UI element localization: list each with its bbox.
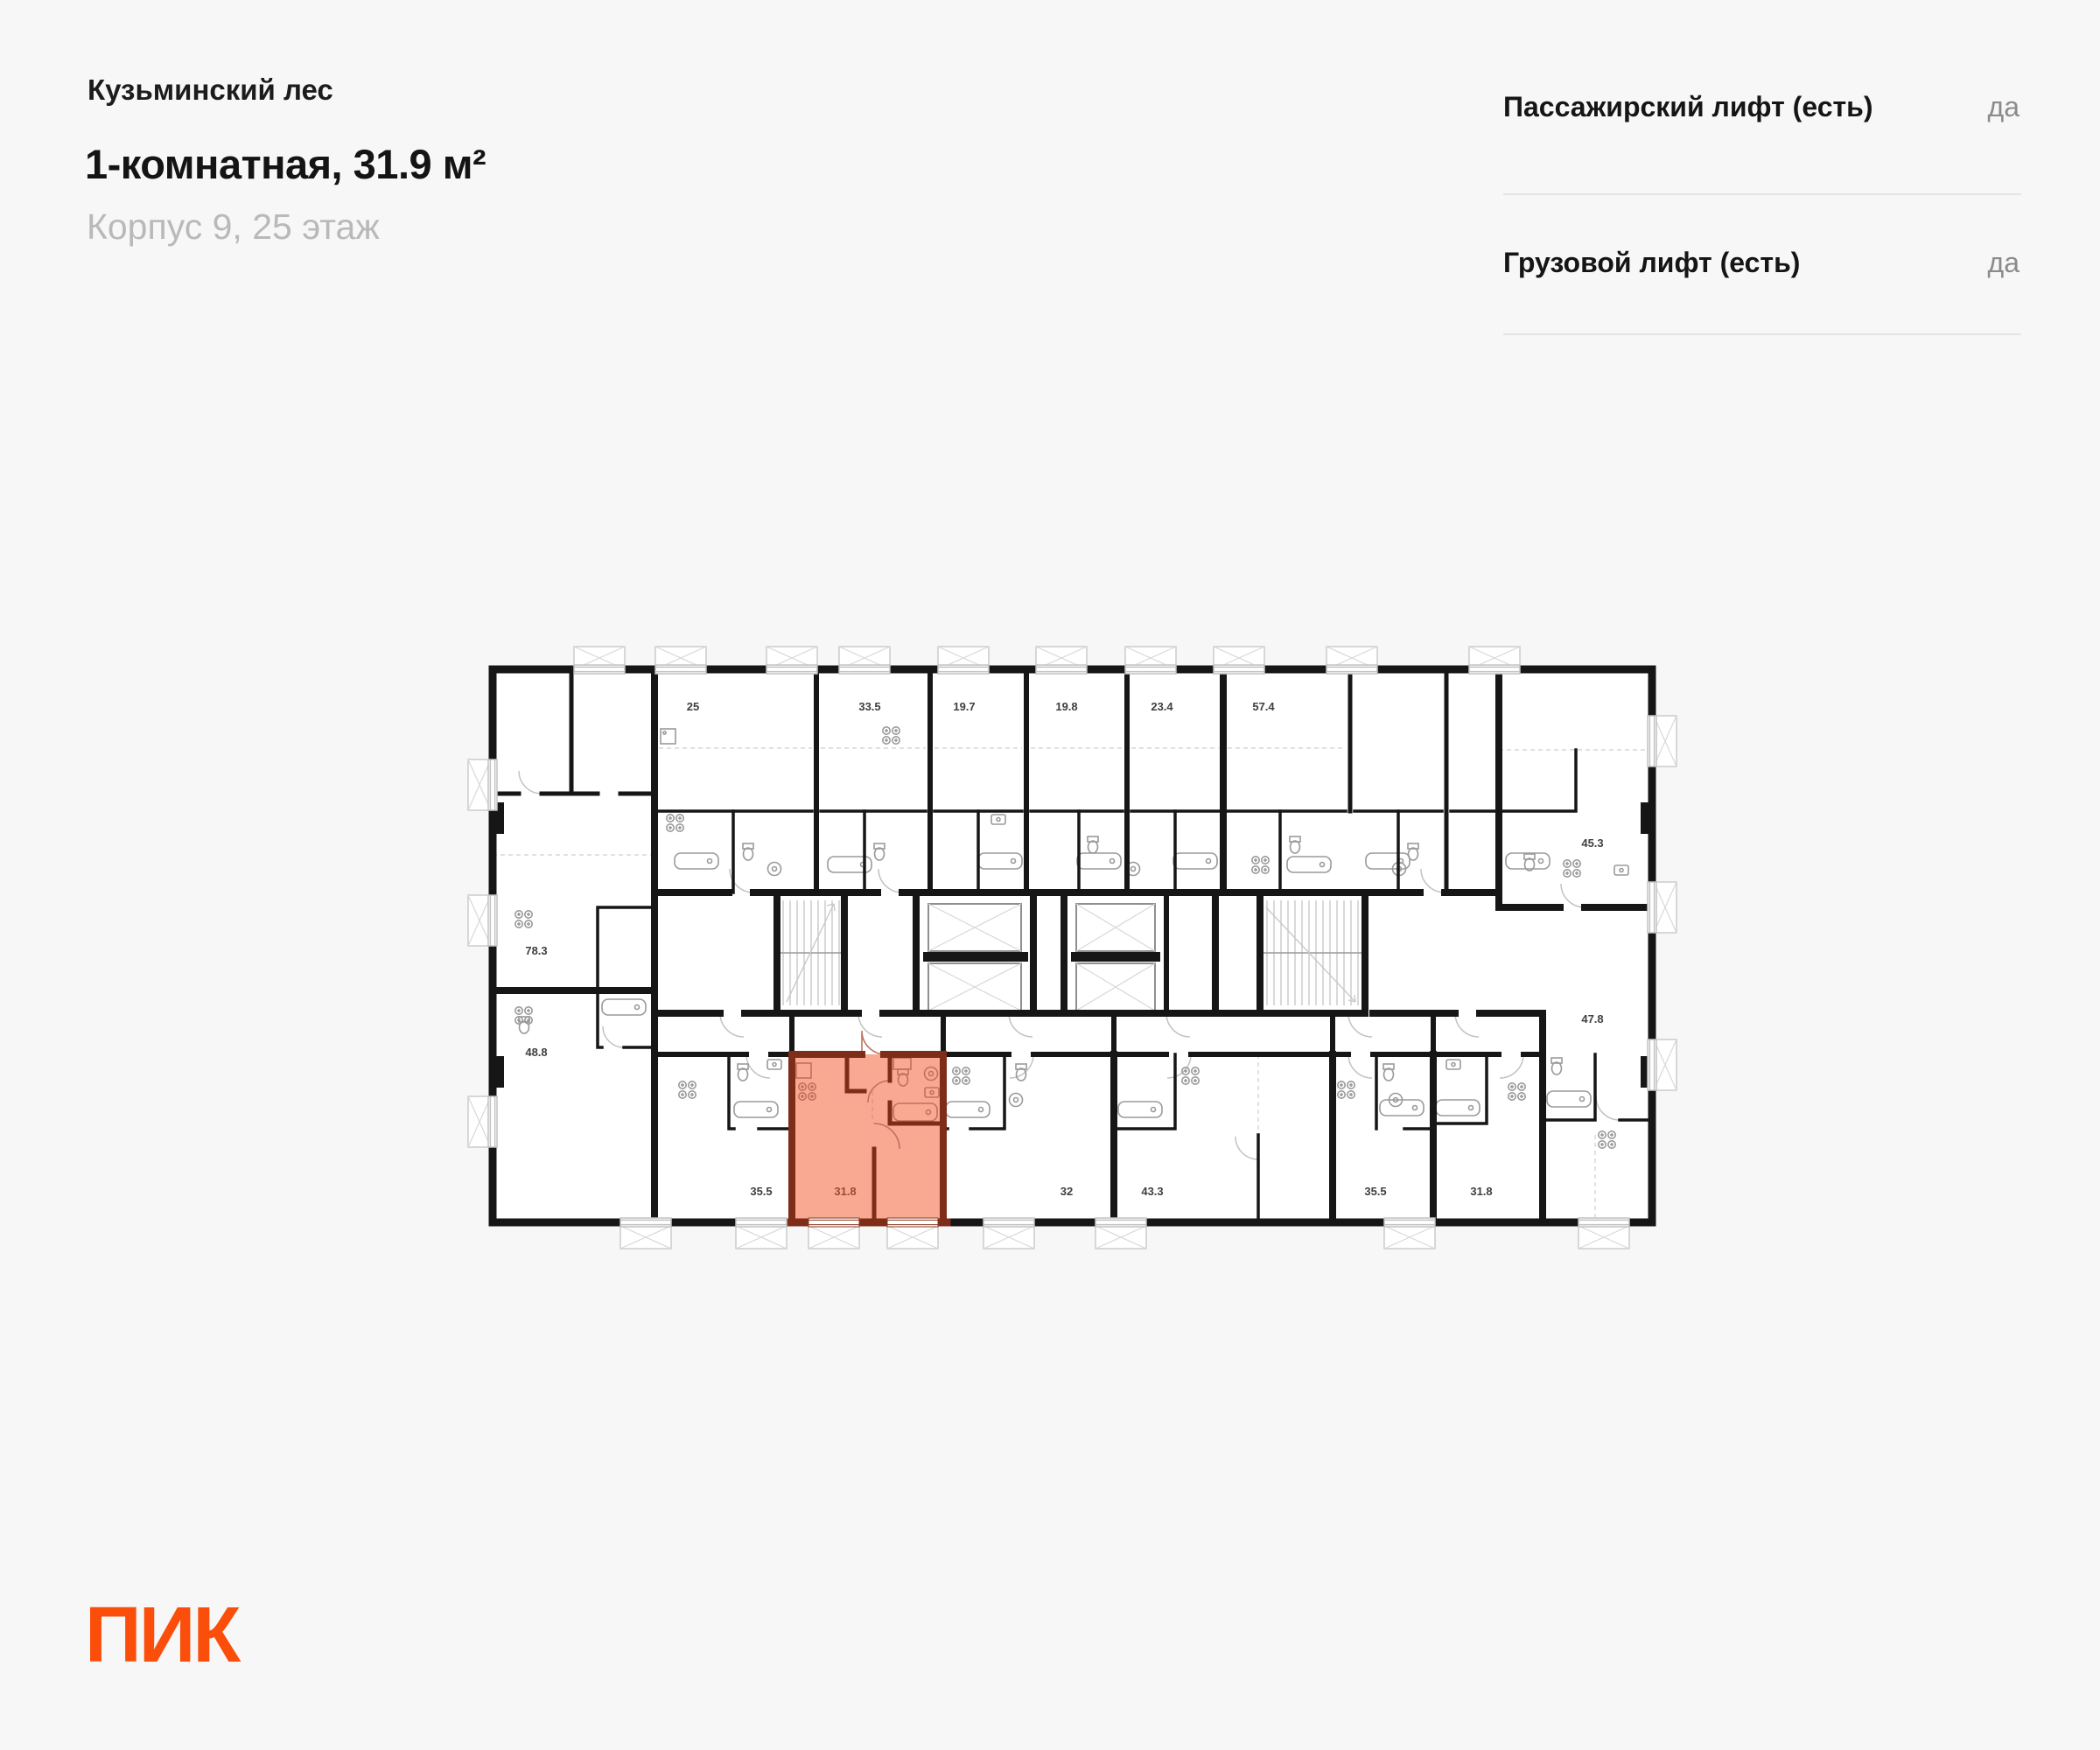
page-subtitle: Корпус 9, 25 этаж [87, 206, 380, 248]
unit-area-label: 43.3 [1141, 1185, 1163, 1198]
specs-panel: Пассажирский лифт (есть) да Грузовой лиф… [1503, 0, 2021, 350]
spec-label: Пассажирский лифт (есть) [1503, 91, 1873, 122]
project-name: Кузьминский лес [87, 73, 333, 107]
floor-plan: 25 33.5 19.7 19.8 23.4 57.4 45.3 78.3 48… [466, 645, 1678, 1257]
unit-area-label: 35.5 [1364, 1185, 1386, 1198]
floor-plan-page: Кузьминский лес 1-комнатная, 31.9 м² Кор… [0, 0, 2100, 1750]
unit-area-label: 31.8 [1470, 1185, 1492, 1198]
unit-area-label: 57.4 [1252, 700, 1275, 713]
spec-value: да [1988, 91, 2019, 123]
pik-logo[interactable]: ПИК [85, 1591, 238, 1681]
unit-area-label: 23.4 [1151, 700, 1173, 713]
unit-area-label: 78.3 [525, 944, 547, 957]
spec-label: Грузовой лифт (есть) [1503, 247, 1800, 278]
divider [1503, 193, 2021, 195]
selected-unit[interactable] [792, 1031, 943, 1222]
unit-area-label: 19.7 [953, 700, 975, 713]
unit-area-label: 25 [687, 700, 699, 713]
building-footprint [493, 669, 1652, 1222]
unit-area-label: 32 [1060, 1185, 1073, 1198]
floor-plan-svg: 25 33.5 19.7 19.8 23.4 57.4 45.3 78.3 48… [466, 645, 1678, 1257]
unit-area-label: 35.5 [750, 1185, 772, 1198]
divider [1503, 333, 2021, 335]
selected-unit-fill[interactable] [792, 1054, 943, 1222]
unit-area-label: 48.8 [525, 1046, 547, 1059]
unit-area-label: 45.3 [1581, 836, 1603, 850]
spec-value: да [1988, 247, 2019, 279]
selected-unit-area-label: 31.8 [834, 1185, 856, 1198]
spec-row-cargo-lift: Грузовой лифт (есть) да [1503, 247, 2021, 279]
unit-area-label: 33.5 [858, 700, 880, 713]
unit-area-label: 19.8 [1055, 700, 1077, 713]
unit-area-label: 47.8 [1581, 1012, 1603, 1025]
spec-row-passenger-lift: Пассажирский лифт (есть) да [1503, 91, 2021, 123]
page-title: 1-комнатная, 31.9 м² [85, 140, 486, 188]
